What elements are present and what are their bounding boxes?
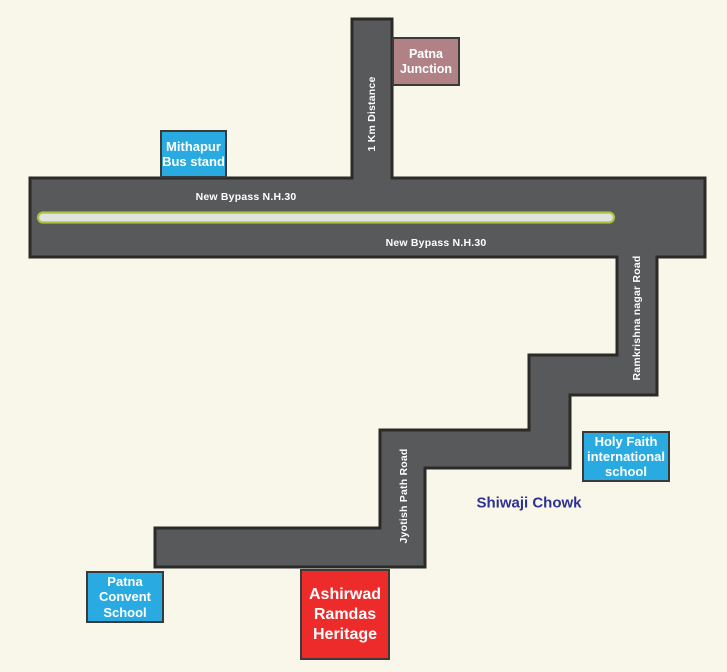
- road-label-new-bypass-top: New Bypass N.H.30: [196, 191, 297, 203]
- landmark-label-line: Patna: [409, 47, 443, 62]
- landmark-label-line: Junction: [400, 62, 452, 77]
- landmark-label-line: Holy Faith: [595, 434, 658, 449]
- landmark-label-line: Ramdas: [314, 605, 376, 625]
- landmark-patna-junction: Patna Junction: [392, 37, 460, 86]
- landmark-holy-faith-international-school: Holy Faith international school: [582, 431, 670, 482]
- landmark-label-line: Ashirwad: [309, 585, 381, 605]
- landmark-label-line: international: [587, 449, 665, 464]
- landmark-patna-convent-school: Patna Convent School: [86, 571, 164, 623]
- landmark-label-line: school: [605, 464, 647, 479]
- road-label-new-bypass-bottom: New Bypass N.H.30: [386, 237, 487, 249]
- road-label-ramkrishna-nagar-road: Ramkrishna nagar Road: [631, 256, 643, 381]
- landmark-label-line: Heritage: [313, 625, 377, 645]
- landmark-label-line: Patna: [107, 574, 142, 589]
- landmark-label-line: Mithapur: [166, 139, 221, 154]
- landmark-label-line: Convent: [99, 589, 151, 604]
- landmark-shiwaji-chowk-label: Shiwaji Chowk: [476, 495, 581, 512]
- road-label-jyotish-path-road: Jyotish Path Road: [398, 449, 410, 544]
- landmark-label-line: School: [103, 605, 146, 620]
- road-label-1km-distance: 1 Km Distance: [366, 77, 378, 152]
- median-divider: [38, 213, 614, 223]
- map-canvas: New Bypass N.H.30 New Bypass N.H.30 1 Km…: [0, 0, 727, 672]
- landmark-label-line: Bus stand: [162, 154, 225, 169]
- landmark-ashirwad-ramdas-heritage: Ashirwad Ramdas Heritage: [300, 569, 390, 660]
- landmark-mithapur-bus-stand: Mithapur Bus stand: [160, 130, 227, 178]
